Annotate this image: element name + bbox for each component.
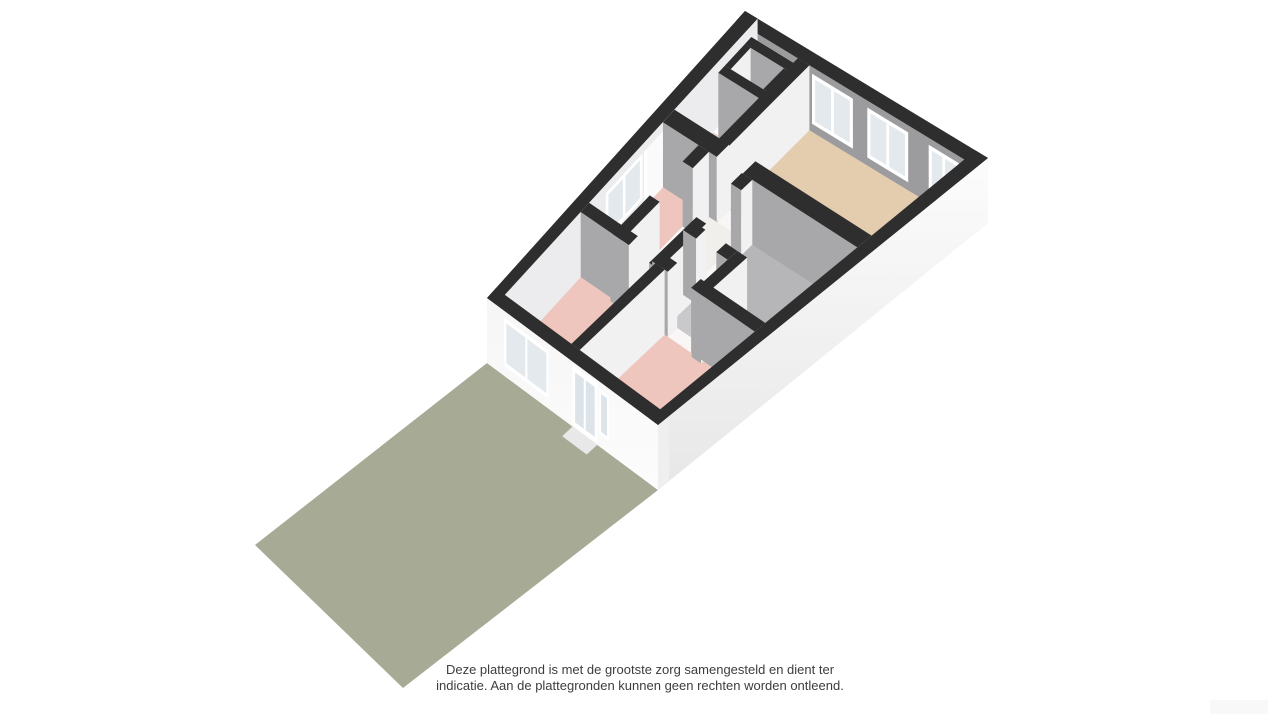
- window-rear-2-mullion: [831, 89, 834, 133]
- watermark: [1210, 700, 1268, 714]
- floorplan-stage: Deze plattegrond is met de grootste zorg…: [0, 0, 1280, 720]
- window-front-mullion: [525, 337, 527, 379]
- floorplan-3d-rendering: [0, 0, 1280, 720]
- window-rear-3-mullion: [886, 123, 889, 167]
- disclaimer-line-2: indicatie. Aan de plattegronden kunnen g…: [0, 678, 1280, 694]
- window-side-mullion: [623, 176, 626, 217]
- wall-front-face-p: [658, 416, 669, 490]
- wall-bedrooms-north-b-face-p: [668, 263, 677, 337]
- wall-bathroom-a-face-q: [731, 184, 741, 256]
- disclaimer-line-1: Deze plattegrond is met de grootste zorg…: [0, 662, 1280, 678]
- sidelight-front-glass: [601, 394, 607, 437]
- wall-bathroom-a-face-p: [741, 180, 752, 256]
- disclaimer: Deze plattegrond is met de grootste zorg…: [0, 662, 1280, 693]
- wall-living-south-a-face-p: [717, 145, 729, 222]
- door-front-stile: [584, 379, 586, 431]
- door-recess-left-jamb-b: [644, 149, 647, 208]
